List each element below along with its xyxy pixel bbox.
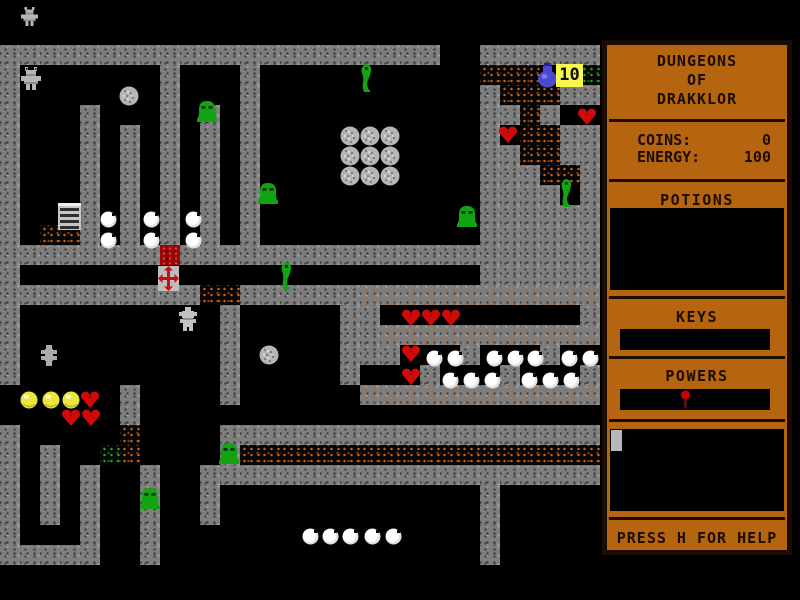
- wall-tile: [0, 265, 20, 285]
- wall-tile: [580, 365, 600, 385]
- wall-tile: [580, 145, 600, 165]
- slime-sprite: [196, 98, 218, 123]
- wall-tile: [320, 465, 340, 485]
- divider: [609, 419, 785, 422]
- pearl-sprite: [185, 211, 202, 228]
- divider: [609, 517, 785, 520]
- wall-tile: [200, 485, 220, 505]
- wall-tile: [480, 145, 500, 165]
- wall-rubble-mix-tile: [440, 325, 460, 345]
- wall-tile: [260, 245, 280, 265]
- wall-rubble-mix-tile: [540, 285, 560, 305]
- pearl-sprite: [100, 211, 117, 228]
- wall-tile: [160, 205, 180, 225]
- pearl-sprite: [582, 350, 599, 367]
- wall-tile: [120, 165, 140, 185]
- powers-header: POWERS: [607, 367, 787, 385]
- wall-tile: [540, 185, 560, 205]
- wall-tile: [400, 425, 420, 445]
- orange-rubble-tile: [460, 445, 480, 465]
- wall-rubble-mix-tile: [480, 285, 500, 305]
- wall-tile: [360, 245, 380, 265]
- golem-sprite: [177, 307, 199, 331]
- potions-box: [610, 208, 784, 290]
- pearl-sprite: [442, 372, 459, 389]
- wall-tile: [560, 45, 580, 65]
- boulder-sprite: [340, 146, 360, 166]
- pearl-sprite: [385, 528, 402, 545]
- wall-tile: [240, 245, 260, 265]
- wall-tile: [300, 425, 320, 445]
- wall-tile: [0, 365, 20, 385]
- heart-sprite: [61, 409, 81, 427]
- wall-tile: [120, 225, 140, 245]
- wall-tile: [500, 145, 520, 165]
- wall-tile: [0, 145, 20, 165]
- wall-tile: [520, 265, 540, 285]
- wall-tile: [220, 325, 240, 345]
- wall-tile: [40, 465, 60, 485]
- wall-tile: [440, 425, 460, 445]
- wall-tile: [240, 145, 260, 165]
- heart-sprite: [401, 345, 421, 363]
- wall-rubble-mix-tile: [460, 285, 480, 305]
- wall-tile: [360, 345, 380, 365]
- wall-tile: [40, 485, 60, 505]
- wall-tile: [300, 245, 320, 265]
- wall-tile: [0, 325, 20, 345]
- wall-tile: [40, 445, 60, 465]
- wall-tile: [180, 45, 200, 65]
- wall-tile: [80, 145, 100, 165]
- wall-tile: [80, 525, 100, 545]
- wall-rubble-mix-tile: [420, 325, 440, 345]
- wall-tile: [360, 305, 380, 325]
- wall-tile: [260, 285, 280, 305]
- wall-tile: [480, 165, 500, 185]
- wall-tile: [580, 465, 600, 485]
- coin-sprite: [20, 391, 38, 409]
- wall-tile: [200, 205, 220, 225]
- heart-sprite: [498, 126, 518, 144]
- wall-tile: [0, 445, 20, 465]
- wall-tile: [460, 425, 480, 445]
- wall-tile: [220, 385, 240, 405]
- powers-bar: [620, 389, 770, 410]
- wall-rubble-mix-tile: [560, 325, 580, 345]
- pearl-sprite: [100, 232, 117, 249]
- wall-tile: [80, 125, 100, 145]
- title-line-3: DRAKKLOR: [607, 90, 787, 109]
- slime-sprite: [257, 180, 279, 205]
- wall-rubble-mix-tile: [400, 325, 420, 345]
- wall-tile: [120, 405, 140, 425]
- green-rubble-tile: [100, 445, 120, 465]
- game-title: DUNGEONS OF DRAKKLOR: [607, 52, 787, 109]
- pearl-sprite: [342, 528, 359, 545]
- wall-rubble-mix-tile: [420, 285, 440, 305]
- wall-rubble-mix-tile: [580, 285, 600, 305]
- wall-tile: [140, 285, 160, 305]
- wall-tile: [200, 245, 220, 265]
- wall-tile: [20, 45, 40, 65]
- orange-rubble-tile: [560, 445, 580, 465]
- inventory-box: [610, 429, 784, 511]
- title-line-2: OF: [607, 71, 787, 90]
- wall-rubble-mix-tile: [400, 385, 420, 405]
- wall-tile: [0, 525, 20, 545]
- wall-tile: [80, 45, 100, 65]
- boulder-sprite: [340, 126, 360, 146]
- wall-tile: [0, 105, 20, 125]
- wall-tile: [340, 245, 360, 265]
- wall-rubble-mix-tile: [500, 385, 520, 405]
- pearl-sprite: [426, 350, 443, 367]
- energy-label: ENERGY:: [637, 148, 700, 166]
- wall-tile: [380, 45, 400, 65]
- wall-tile: [20, 285, 40, 305]
- wall-tile: [480, 185, 500, 205]
- wall-tile: [120, 45, 140, 65]
- orange-rubble-tile: [200, 285, 220, 305]
- wall-rubble-mix-tile: [360, 285, 380, 305]
- wall-tile: [180, 285, 200, 305]
- wall-tile: [240, 225, 260, 245]
- wall-tile: [500, 265, 520, 285]
- wall-tile: [20, 545, 40, 565]
- wall-tile: [120, 285, 140, 305]
- wall-tile: [160, 225, 180, 245]
- energy-stat: ENERGY: 100: [607, 148, 787, 166]
- wall-tile: [520, 425, 540, 445]
- pearl-sprite: [364, 528, 381, 545]
- wall-tile: [220, 305, 240, 325]
- wall-tile: [160, 145, 180, 165]
- wall-tile: [40, 45, 60, 65]
- player-sprite: [21, 66, 41, 91]
- wall-tile: [0, 425, 20, 445]
- wall-tile: [100, 285, 120, 305]
- pearl-sprite: [542, 372, 559, 389]
- orange-rubble-tile: [540, 145, 560, 165]
- orange-rubble-tile: [520, 105, 540, 125]
- wall-rubble-mix-tile: [580, 385, 600, 405]
- wall-tile: [200, 145, 220, 165]
- wall-tile: [200, 185, 220, 205]
- wall-tile: [520, 185, 540, 205]
- wall-tile: [80, 545, 100, 565]
- wall-tile: [560, 145, 580, 165]
- wall-tile: [420, 465, 440, 485]
- wall-tile: [220, 345, 240, 365]
- wall-tile: [580, 85, 600, 105]
- wall-tile: [560, 245, 580, 265]
- wall-tile: [360, 45, 380, 65]
- heart-sprite: [401, 368, 421, 386]
- heart-sprite: [80, 391, 100, 409]
- wall-tile: [480, 225, 500, 245]
- wall-tile: [580, 125, 600, 145]
- wall-tile: [140, 45, 160, 65]
- wall-tile: [0, 245, 20, 265]
- boulder-sprite: [380, 126, 400, 146]
- orange-rubble-tile: [540, 125, 560, 145]
- keys-header: KEYS: [607, 308, 787, 326]
- wall-tile: [480, 425, 500, 445]
- wall-tile: [100, 45, 120, 65]
- wall-tile: [560, 425, 580, 445]
- wall-tile: [420, 425, 440, 445]
- wall-tile: [580, 185, 600, 205]
- wall-tile: [480, 85, 500, 105]
- wall-tile: [480, 45, 500, 65]
- wall-tile: [300, 285, 320, 305]
- wall-tile: [160, 45, 180, 65]
- wall-tile: [380, 345, 400, 365]
- boulder-sprite: [380, 146, 400, 166]
- wall-tile: [560, 225, 580, 245]
- wall-tile: [540, 465, 560, 485]
- boulder-sprite: [380, 166, 400, 186]
- orange-rubble-tile: [520, 125, 540, 145]
- wall-tile: [260, 45, 280, 65]
- wall-tile: [80, 205, 100, 225]
- boulder-sprite: [340, 166, 360, 186]
- orange-rubble-tile: [240, 445, 260, 465]
- wall-tile: [0, 225, 20, 245]
- heart-sprite: [577, 108, 597, 126]
- wall-tile: [0, 185, 20, 205]
- pearl-sprite: [527, 350, 544, 367]
- wall-tile: [480, 545, 500, 565]
- orange-rubble-tile: [120, 425, 140, 445]
- wall-tile: [160, 65, 180, 85]
- wall-tile: [80, 505, 100, 525]
- wall-tile: [480, 525, 500, 545]
- orange-rubble-tile: [500, 85, 520, 105]
- wall-tile: [340, 325, 360, 345]
- orange-rubble-tile: [340, 445, 360, 465]
- wall-tile: [320, 425, 340, 445]
- boulder-sprite: [119, 86, 139, 106]
- wall-tile: [260, 465, 280, 485]
- wall-tile: [60, 285, 80, 305]
- keys-bar: [620, 329, 770, 350]
- wall-tile: [160, 105, 180, 125]
- wall-tile: [120, 145, 140, 165]
- wall-tile: [580, 305, 600, 325]
- wall-tile: [120, 385, 140, 405]
- wall-tile: [460, 245, 480, 265]
- wall-tile: [40, 505, 60, 525]
- wall-tile: [160, 85, 180, 105]
- wall-tile: [220, 245, 240, 265]
- spider-sprite: [39, 345, 59, 368]
- wall-tile: [580, 165, 600, 185]
- wall-tile: [440, 245, 460, 265]
- wall-tile: [540, 425, 560, 445]
- wall-tile: [0, 165, 20, 185]
- orange-rubble-tile: [360, 445, 380, 465]
- snake-sprite: [558, 178, 573, 208]
- orange-rubble-tile: [300, 445, 320, 465]
- wall-tile: [480, 125, 500, 145]
- wall-tile: [340, 365, 360, 385]
- wall-tile: [200, 465, 220, 485]
- orange-rubble-tile: [520, 445, 540, 465]
- wall-rubble-mix-tile: [500, 325, 520, 345]
- divider: [609, 119, 785, 122]
- coin-sprite: [62, 391, 80, 409]
- wall-tile: [520, 225, 540, 245]
- wall-rubble-mix-tile: [360, 385, 380, 405]
- coin-sprite: [42, 391, 60, 409]
- wall-tile: [40, 285, 60, 305]
- title-line-1: DUNGEONS: [607, 52, 787, 71]
- wall-tile: [0, 465, 20, 485]
- wall-tile: [480, 505, 500, 525]
- orange-rubble-tile: [480, 445, 500, 465]
- wall-tile: [580, 245, 600, 265]
- wall-tile: [480, 265, 500, 285]
- heart-sprite: [421, 309, 441, 327]
- orange-rubble-tile: [380, 445, 400, 465]
- wall-rubble-mix-tile: [440, 285, 460, 305]
- wall-tile: [340, 45, 360, 65]
- mini-player-sprite: [21, 6, 38, 27]
- wall-tile: [580, 225, 600, 245]
- pearl-sprite: [447, 350, 464, 367]
- pearl-sprite: [185, 232, 202, 249]
- wall-tile: [500, 245, 520, 265]
- game-screen[interactable]: 10 DUNGEONS OF DRAKKLOR COINS: 0 ENERGY:…: [0, 0, 800, 600]
- wall-tile: [80, 165, 100, 185]
- wall-tile: [260, 425, 280, 445]
- wall-tile: [120, 245, 140, 265]
- pearl-sprite: [322, 528, 339, 545]
- wall-tile: [560, 125, 580, 145]
- wall-tile: [240, 125, 260, 145]
- wall-tile: [80, 245, 100, 265]
- wall-tile: [580, 45, 600, 65]
- wall-tile: [500, 105, 520, 125]
- orange-rubble-tile: [400, 445, 420, 465]
- wall-tile: [80, 485, 100, 505]
- wall-tile: [480, 105, 500, 125]
- wall-tile: [80, 465, 100, 485]
- pearl-sprite: [521, 372, 538, 389]
- orange-rubble-tile: [480, 65, 500, 85]
- orange-rubble-tile: [540, 445, 560, 465]
- inventory-item: [611, 430, 622, 451]
- wall-tile: [480, 485, 500, 505]
- divider: [609, 296, 785, 299]
- ten-sprite: 10: [556, 64, 583, 87]
- wall-tile: [0, 285, 20, 305]
- boulder-sprite: [360, 126, 380, 146]
- wall-tile: [500, 205, 520, 225]
- wall-tile: [380, 425, 400, 445]
- orange-rubble-tile: [440, 445, 460, 465]
- snake-sprite: [278, 261, 293, 291]
- energy-value: 100: [744, 148, 771, 166]
- slime-sprite: [139, 485, 161, 510]
- pearl-sprite: [143, 232, 160, 249]
- orange-rubble-tile: [280, 445, 300, 465]
- wall-tile: [60, 245, 80, 265]
- wall-tile: [500, 425, 520, 445]
- pearl-sprite: [302, 528, 319, 545]
- wall-tile: [40, 545, 60, 565]
- boulder-sprite: [360, 146, 380, 166]
- wall-rubble-mix-tile: [380, 385, 400, 405]
- orange-rubble-tile: [520, 85, 540, 105]
- wall-tile: [500, 185, 520, 205]
- wall-tile: [480, 245, 500, 265]
- status-sidebar: DUNGEONS OF DRAKKLOR COINS: 0 ENERGY: 10…: [602, 40, 792, 555]
- wall-tile: [0, 545, 20, 565]
- wall-tile: [420, 45, 440, 65]
- wall-tile: [560, 265, 580, 285]
- wall-tile: [0, 505, 20, 525]
- wall-rubble-mix-tile: [580, 325, 600, 345]
- wall-tile: [340, 345, 360, 365]
- orange-rubble-tile: [500, 445, 520, 465]
- heart-sprite: [81, 409, 101, 427]
- wall-tile: [60, 45, 80, 65]
- wall-tile: [240, 465, 260, 485]
- wall-tile: [380, 245, 400, 265]
- orange-rubble-tile: [540, 85, 560, 105]
- wall-tile: [520, 245, 540, 265]
- wall-tile: [0, 125, 20, 145]
- boulder-sprite: [360, 166, 380, 186]
- wall-rubble-mix-tile: [480, 325, 500, 345]
- wall-tile: [420, 245, 440, 265]
- wall-rubble-mix-tile: [540, 325, 560, 345]
- wall-tile: [500, 165, 520, 185]
- wall-tile: [540, 225, 560, 245]
- cross-sprite: [158, 266, 179, 291]
- wall-tile: [0, 345, 20, 365]
- wall-tile: [200, 45, 220, 65]
- wall-tile: [540, 45, 560, 65]
- coins-value: 0: [762, 131, 771, 149]
- potions-header: POTIONS: [607, 191, 787, 209]
- wall-rubble-mix-tile: [520, 285, 540, 305]
- wall-tile: [240, 65, 260, 85]
- wall-tile: [400, 465, 420, 485]
- wall-tile: [200, 125, 220, 145]
- heart-sprite: [441, 309, 461, 327]
- wall-tile: [80, 105, 100, 125]
- wall-rubble-mix-tile: [400, 285, 420, 305]
- wall-tile: [0, 65, 20, 85]
- wall-tile: [220, 45, 240, 65]
- wall-tile: [240, 425, 260, 445]
- wall-tile: [80, 225, 100, 245]
- wall-tile: [120, 205, 140, 225]
- wall-tile: [540, 105, 560, 125]
- wall-tile: [280, 425, 300, 445]
- pearl-sprite: [507, 350, 524, 367]
- wall-tile: [240, 45, 260, 65]
- wall-tile: [480, 205, 500, 225]
- wall-rubble-mix-tile: [500, 285, 520, 305]
- power-pin-icon: [680, 390, 691, 413]
- pearl-sprite: [486, 350, 503, 367]
- wall-tile: [560, 465, 580, 485]
